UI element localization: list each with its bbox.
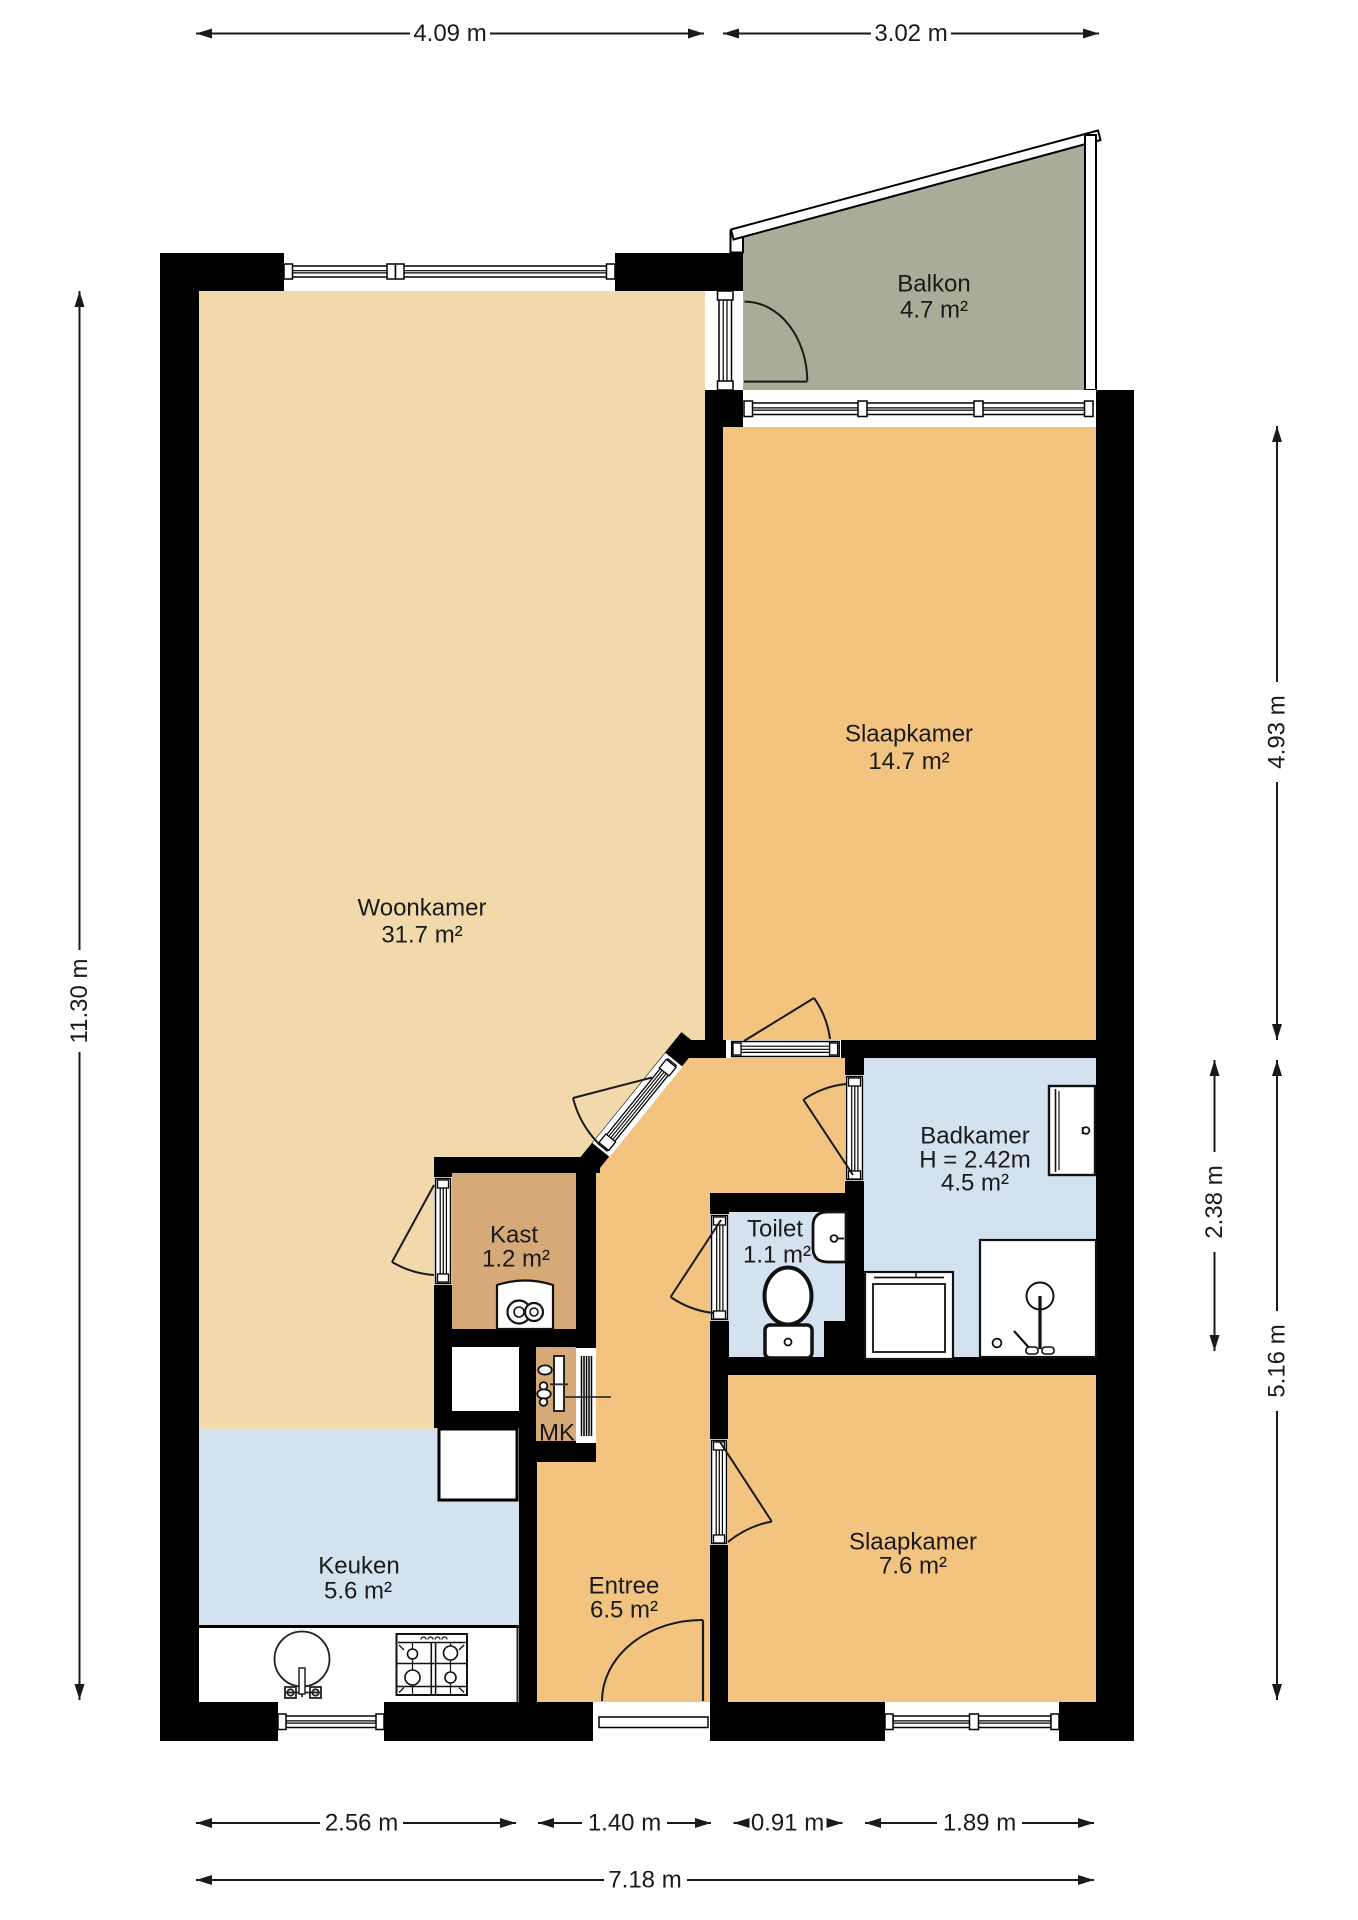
svg-text:Slaapkamer: Slaapkamer [849, 1529, 977, 1556]
svg-text:14.7 m²: 14.7 m² [868, 748, 949, 775]
svg-text:Kast: Kast [490, 1222, 538, 1249]
svg-text:Badkamer: Badkamer [920, 1123, 1029, 1150]
svg-text:4.7 m²: 4.7 m² [900, 297, 968, 324]
svg-text:Keuken: Keuken [318, 1553, 399, 1580]
svg-text:11.30 m: 11.30 m [66, 959, 93, 1044]
svg-text:2.38 m: 2.38 m [1201, 1165, 1228, 1238]
svg-text:2.56 m: 2.56 m [325, 1810, 398, 1837]
svg-text:1.89 m: 1.89 m [943, 1810, 1016, 1837]
svg-text:Toilet: Toilet [747, 1216, 803, 1243]
svg-text:1.1 m²: 1.1 m² [743, 1242, 811, 1269]
svg-text:4.5 m²: 4.5 m² [941, 1170, 1009, 1197]
svg-text:7.6 m²: 7.6 m² [879, 1553, 947, 1580]
svg-text:Balkon: Balkon [897, 271, 970, 298]
svg-text:Entree: Entree [589, 1573, 660, 1600]
svg-text:5.6 m²: 5.6 m² [324, 1578, 392, 1605]
svg-text:3.02 m: 3.02 m [874, 20, 947, 47]
svg-text:Slaapkamer: Slaapkamer [845, 721, 973, 748]
svg-text:1.2 m²: 1.2 m² [482, 1246, 550, 1273]
svg-text:31.7 m²: 31.7 m² [381, 922, 462, 949]
svg-text:7.18 m: 7.18 m [608, 1867, 681, 1894]
svg-text:6.5 m²: 6.5 m² [590, 1597, 658, 1624]
svg-text:Woonkamer: Woonkamer [358, 895, 487, 922]
svg-text:0.91 m: 0.91 m [751, 1810, 824, 1837]
svg-text:5.16 m: 5.16 m [1264, 1324, 1291, 1397]
svg-text:MK: MK [539, 1420, 575, 1447]
svg-text:4.93 m: 4.93 m [1264, 695, 1291, 768]
svg-text:1.40 m: 1.40 m [588, 1810, 661, 1837]
svg-text:4.09 m: 4.09 m [413, 20, 486, 47]
